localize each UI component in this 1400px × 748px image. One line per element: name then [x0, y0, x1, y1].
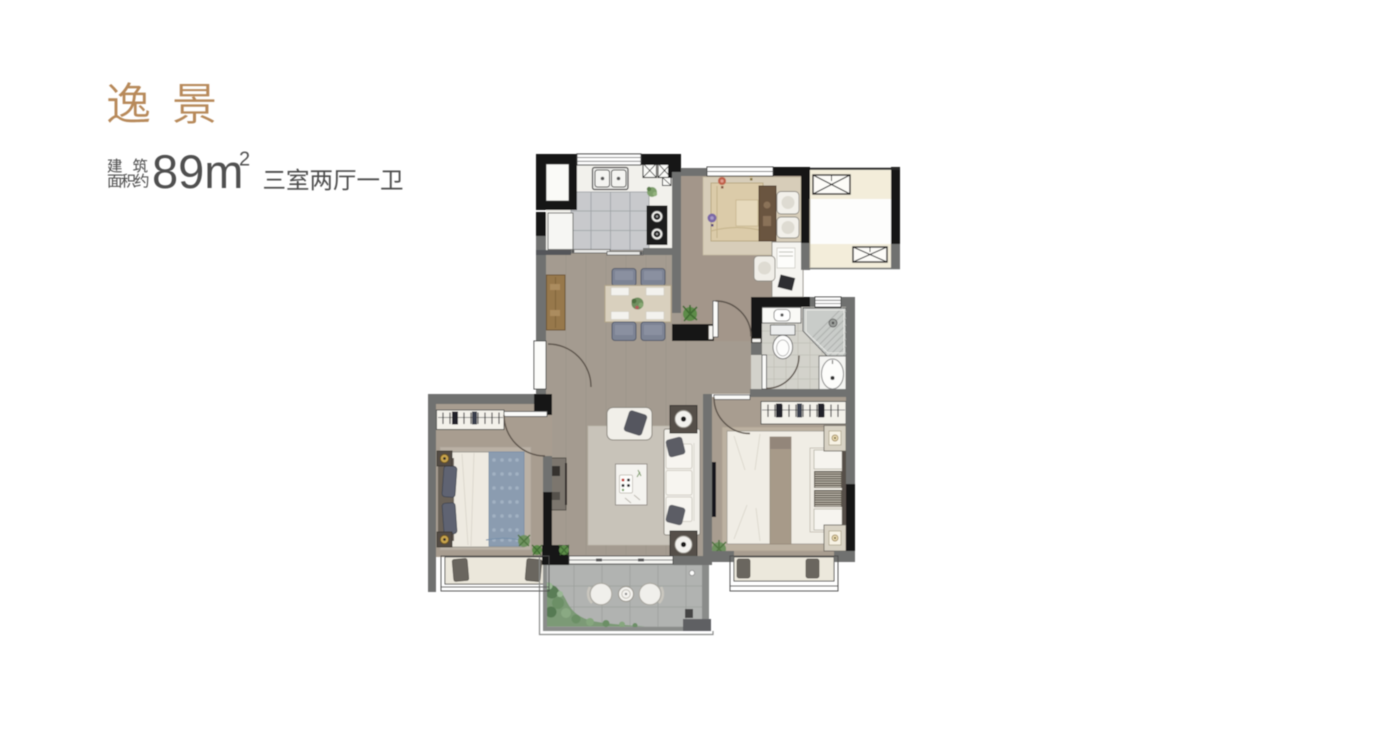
- svg-text:2: 2: [239, 149, 250, 171]
- svg-text:89m: 89m: [152, 145, 243, 198]
